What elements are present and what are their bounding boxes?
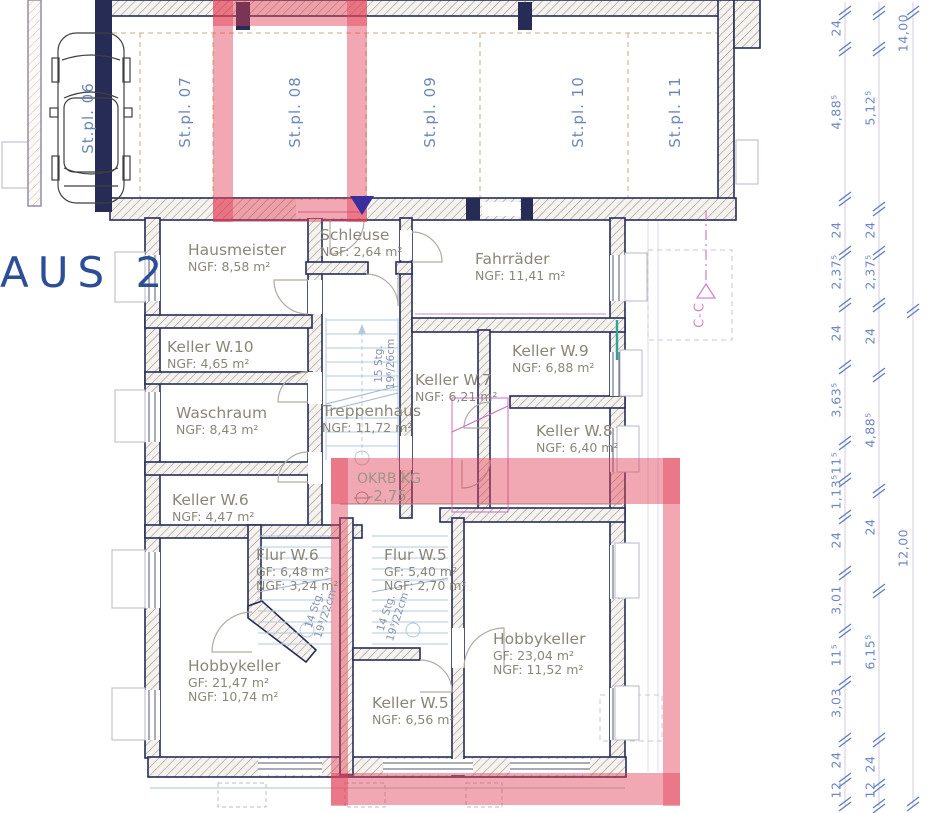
dim-label: 24 <box>829 20 844 37</box>
dim-label: 2,37⁵ <box>829 254 844 289</box>
level-label: OKRB KG <box>357 471 421 487</box>
dim-label: 5,12⁵ <box>863 90 878 125</box>
room-name: Keller W.5 <box>372 695 454 713</box>
dim-label: 12 <box>829 782 844 799</box>
room-label-keller-w7: Keller W.7 NGF: 6,21 m² <box>415 372 497 404</box>
room-gf: GF: 23,04 m² <box>493 649 585 663</box>
room-name: Schleuse <box>320 227 402 245</box>
dim-label: 2,37⁵ <box>863 254 878 289</box>
parking-spot-label: St.pl. 08 <box>286 76 304 147</box>
room-label-treppenhaus: Treppenhaus NGF: 11,72 m² <box>322 403 421 435</box>
room-area: NGF: 4,65 m² <box>167 357 254 371</box>
room-name: Hobbykeller <box>493 631 585 649</box>
dim-label: 24 <box>829 532 844 549</box>
room-name: Treppenhaus <box>322 403 421 421</box>
room-area: NGF: 6,21 m² <box>415 390 497 404</box>
level-value: -2,75 <box>368 487 407 505</box>
room-area: NGF: 6,88 m² <box>512 361 594 375</box>
window-boxes <box>112 140 758 740</box>
room-label-flur-w5: Flur W.5 GF: 5,40 m² NGF: 2,70 m² <box>384 547 466 593</box>
room-label-keller-w9: Keller W.9 NGF: 6,88 m² <box>512 343 594 375</box>
dim-label: 24 <box>863 756 878 773</box>
dim-label: 3,03 <box>829 688 844 718</box>
room-area: NGF: 8,58 m² <box>188 260 286 274</box>
room-label-keller-w6: Keller W.6 NGF: 4,47 m² <box>172 492 254 524</box>
dim-label: 14,00 <box>896 14 911 52</box>
dim-label: 12,00 <box>896 529 911 567</box>
parking-dividers <box>112 33 718 198</box>
dim-label: 4,88⁵ <box>829 94 844 129</box>
room-name: Flur W.6 <box>256 547 338 565</box>
room-area: NGF: 10,74 m² <box>188 690 280 704</box>
dim-label: 1,13⁵ <box>829 474 844 509</box>
dim-label: 11⁵ <box>829 452 844 474</box>
room-label-keller-w10: Keller W.10 NGF: 4,65 m² <box>167 339 254 371</box>
parking-spot-label: St.pl. 11 <box>666 76 684 147</box>
stair-label-main: 15 Stg. 19⁶/26cm <box>373 339 397 389</box>
room-area: NGF: 6,40 m² <box>536 441 618 455</box>
dim-label: 12 <box>863 782 878 799</box>
room-label-hobbykeller-links: Hobbykeller GF: 21,47 m² NGF: 10,74 m² <box>188 658 280 704</box>
dim-label: 24 <box>863 519 878 536</box>
room-name: Fahrräder <box>475 251 565 269</box>
room-area: NGF: 2,64 m² <box>320 245 402 259</box>
room-label-keller-w5: Keller W.5 NGF: 6,56 m² <box>372 695 454 727</box>
stair-steps: 15 Stg. <box>373 339 385 389</box>
dim-label: 24 <box>829 222 844 239</box>
room-area: NGF: 6,56 m² <box>372 713 454 727</box>
room-name: Keller W.10 <box>167 339 254 357</box>
room-name: Keller W.7 <box>415 372 497 390</box>
room-area: NGF: 11,72 m² <box>322 421 421 435</box>
plan-title: AUS 2 <box>0 248 171 297</box>
parking-spot-label: St.pl. 06 <box>79 82 97 153</box>
room-area: NGF: 8,43 m² <box>176 423 267 437</box>
room-label-fahrraeder: Fahrräder NGF: 11,41 m² <box>475 251 565 283</box>
dim-label: 24 <box>829 752 844 769</box>
section-line-cc <box>697 210 715 298</box>
room-name: Keller W.6 <box>172 492 254 510</box>
room-area: NGF: 11,41 m² <box>475 269 565 283</box>
room-label-waschraum: Waschraum NGF: 8,43 m² <box>176 405 267 437</box>
room-name: Keller W.9 <box>512 343 594 361</box>
room-name: Hobbykeller <box>188 658 280 676</box>
dim-label: 4,88⁵ <box>863 412 878 447</box>
room-label-flur-w6: Flur W.6 GF: 6,48 m² NGF: 3,24 m² <box>256 547 338 593</box>
room-gf: GF: 6,48 m² <box>256 565 338 579</box>
floorplan-drawing <box>0 0 936 813</box>
room-label-hausmeister: Hausmeister NGF: 8,58 m² <box>188 242 286 274</box>
room-area: NGF: 11,52 m² <box>493 663 585 677</box>
dim-label: 3,63⁵ <box>829 382 844 417</box>
dim-label: 6,15⁵ <box>863 634 878 669</box>
room-name: Keller W.8 <box>536 423 618 441</box>
dim-label: 3,01 <box>829 585 844 615</box>
dim-label: 24 <box>829 325 844 342</box>
floorplan-canvas: AUS 2 St.pl. 06 St.pl. 07 St.pl. 08 St.p… <box>0 0 936 813</box>
room-area: NGF: 4,47 m² <box>172 510 254 524</box>
dim-label: 24 <box>863 222 878 239</box>
stair-dims: 19⁶/26cm <box>385 339 397 389</box>
room-name: Waschraum <box>176 405 267 423</box>
room-label-schleuse: Schleuse NGF: 2,64 m² <box>320 227 402 259</box>
parking-spot-label: St.pl. 07 <box>176 76 194 147</box>
room-name: Hausmeister <box>188 242 286 260</box>
dimension-chains <box>839 2 919 813</box>
parking-spot-label: St.pl. 10 <box>569 76 587 147</box>
room-gf: GF: 5,40 m² <box>384 565 466 579</box>
room-label-hobbykeller-rechts: Hobbykeller GF: 23,04 m² NGF: 11,52 m² <box>493 631 585 677</box>
dim-label: 11⁵ <box>829 644 844 666</box>
room-label-keller-w8: Keller W.8 NGF: 6,40 m² <box>536 423 618 455</box>
parking-spot-label: St.pl. 09 <box>421 76 439 147</box>
section-label: C-C <box>693 302 708 328</box>
dim-label: 24 <box>863 328 878 345</box>
room-gf: GF: 21,47 m² <box>188 676 280 690</box>
room-name: Flur W.5 <box>384 547 466 565</box>
